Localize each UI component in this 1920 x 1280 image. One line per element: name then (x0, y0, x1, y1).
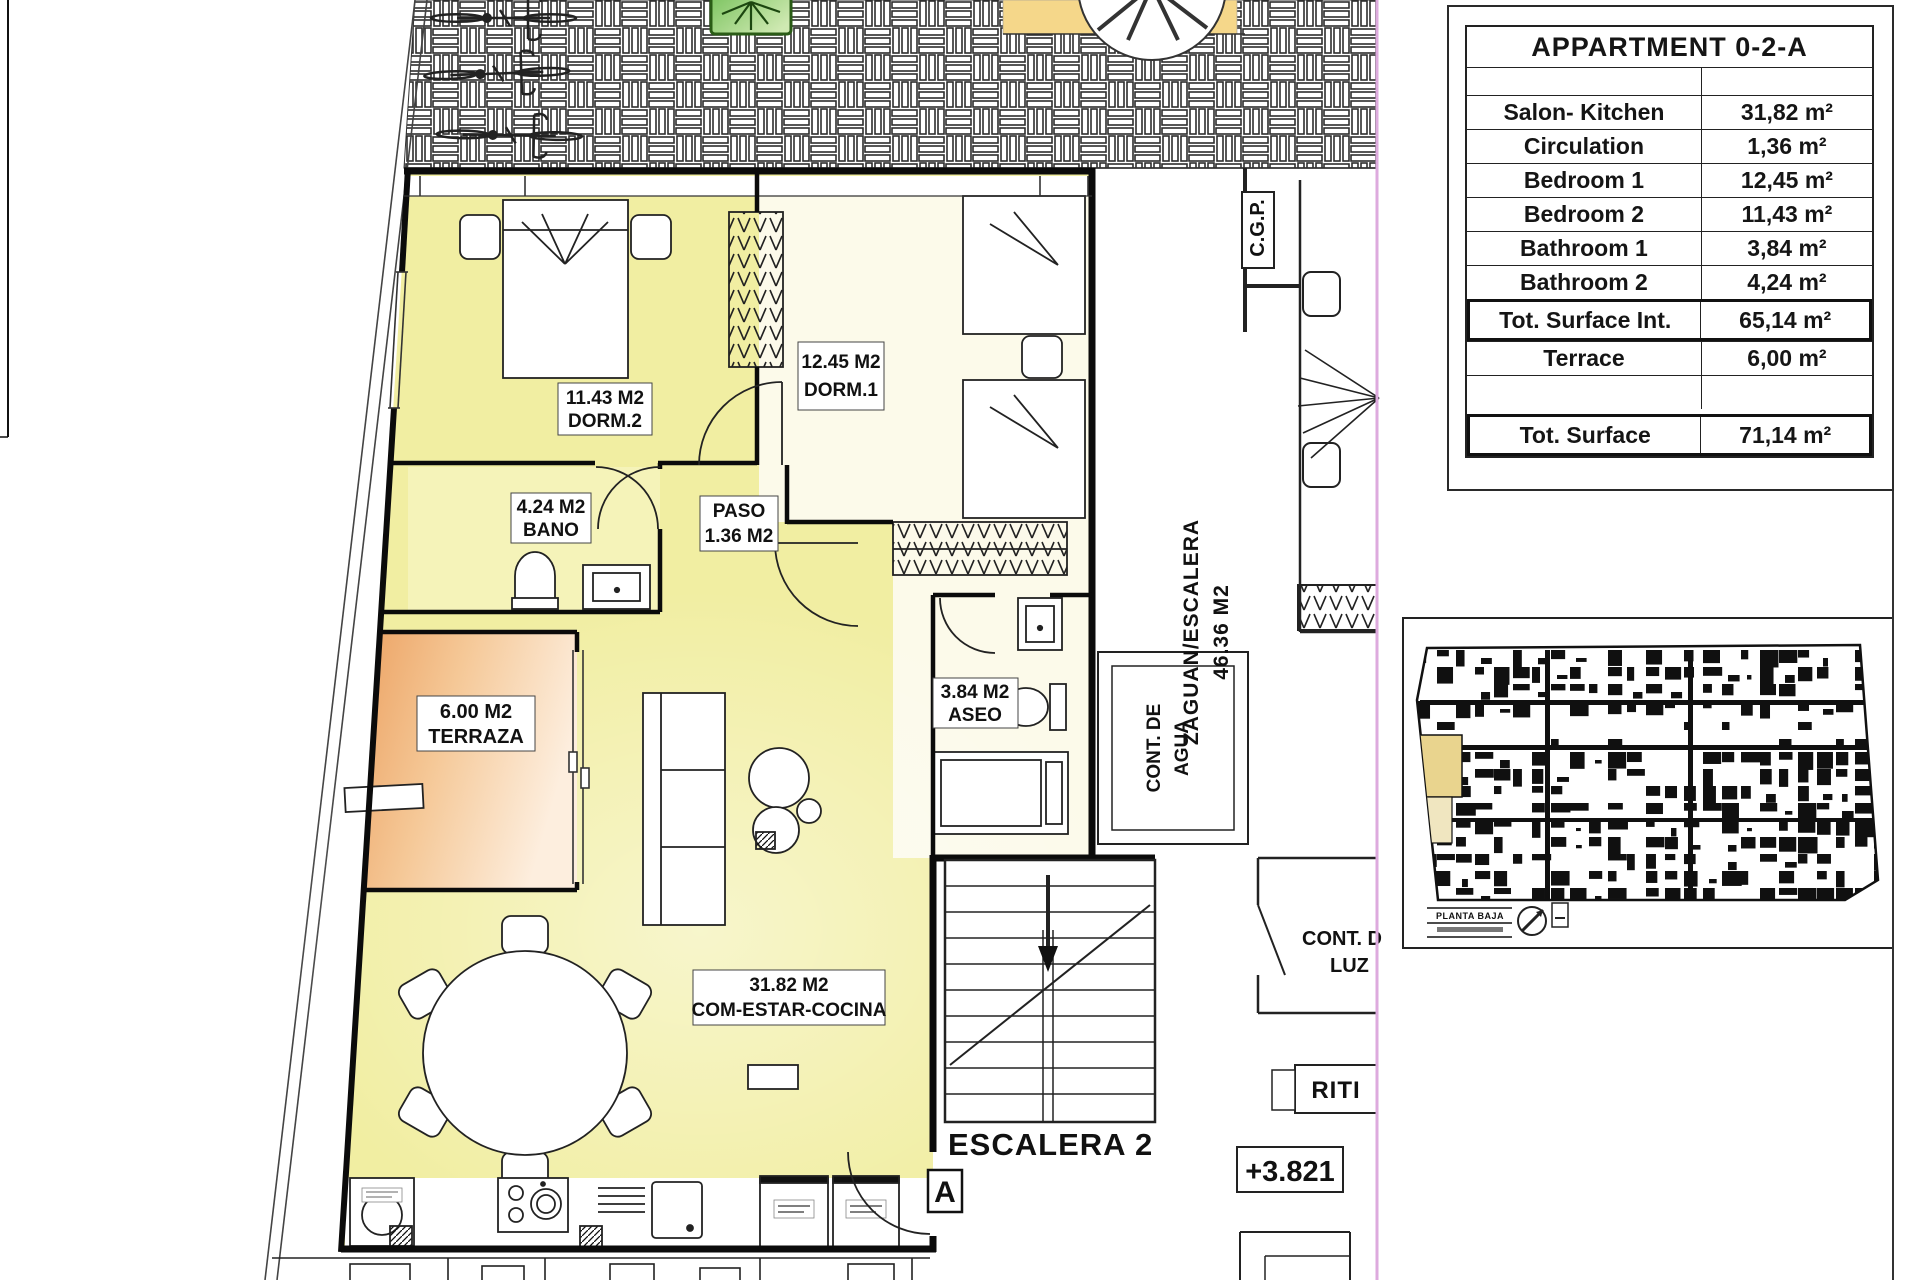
cont-luz-label: CONT. D (1302, 928, 1382, 950)
level-label: +3.821 (1245, 1156, 1335, 1188)
label-dorm2: 11.43 M2 DORM.2 (558, 383, 652, 435)
table-row (1467, 375, 1872, 409)
svg-text:1.36 M2: 1.36 M2 (705, 526, 774, 547)
svg-text:3.84 M2: 3.84 M2 (941, 682, 1010, 703)
cont-agua-label2: AGUA (1172, 720, 1193, 776)
freezer-icon (833, 1176, 899, 1248)
cont-luz-label2: LUZ (1330, 955, 1369, 977)
nightstand (1303, 272, 1340, 316)
floorplan-sheet: 11.43 M2 DORM.2 12.45 M2 DORM.1 4.24 M2 … (0, 0, 1920, 1280)
bed-single (963, 380, 1085, 518)
svg-text:4.24 M2: 4.24 M2 (517, 497, 586, 518)
svg-text:PASO: PASO (713, 501, 765, 522)
zaguan-label: ZAGUAN/ESCALERA (1180, 519, 1203, 745)
area-table: APPARTMENT 0-2-A Salon- Kitchen31,82 m² … (1465, 25, 1874, 458)
sofa-icon (643, 693, 725, 925)
riti-label: RITI (1311, 1077, 1360, 1104)
lower-unit-fragment (272, 1258, 930, 1280)
svg-text:12.45 M2: 12.45 M2 (801, 352, 880, 373)
table-row-total: Tot. Surface71,14 m² (1467, 414, 1872, 456)
svg-text:COM-ESTAR-COCINA: COM-ESTAR-COCINA (692, 1000, 887, 1021)
column (756, 832, 775, 849)
toilet-icon (512, 552, 558, 609)
zaguan-area-label: 46.36 M2 (1210, 584, 1233, 680)
area-table-title: APPARTMENT 0-2-A (1467, 27, 1872, 67)
side-table (748, 1065, 798, 1089)
nightstand (1022, 336, 1062, 378)
svg-text:TERRAZA: TERRAZA (428, 726, 524, 748)
nightstand (460, 215, 500, 259)
label-dorm1: 12.45 M2 DORM.1 (798, 342, 884, 410)
nightstand (631, 215, 671, 259)
label-paso: PASO 1.36 M2 (700, 496, 778, 551)
column (580, 1226, 602, 1248)
svg-text:DORM.1: DORM.1 (804, 380, 878, 401)
tree-icon (711, 0, 791, 34)
table-row: Bedroom 211,43 m² (1467, 197, 1872, 231)
partial-structure (1240, 1232, 1350, 1280)
table-row (1467, 67, 1872, 95)
wardrobe (893, 522, 1067, 575)
hob-icon (498, 1178, 568, 1232)
cgp-label: C.G.P. (1247, 199, 1269, 256)
table-row: Terrace6,00 m² (1467, 341, 1872, 375)
table-row-total-interior: Tot. Surface Int.65,14 m² (1467, 299, 1872, 341)
table-row: Bathroom 13,84 m² (1467, 231, 1872, 265)
sink-vanity (583, 565, 650, 609)
cont-agua-label: CONT. DE (1144, 704, 1165, 793)
stairwell (945, 860, 1155, 1122)
fan-detail (1298, 350, 1379, 458)
area-table-frame: APPARTMENT 0-2-A Salon- Kitchen31,82 m² … (1447, 5, 1894, 491)
sink-icon (1018, 598, 1062, 650)
bed-single (963, 196, 1085, 334)
bathtub-icon (933, 752, 1068, 834)
svg-text:6.00 M2: 6.00 M2 (440, 701, 512, 723)
fridge-icon (760, 1176, 828, 1248)
table-row: Bathroom 24,24 m² (1467, 265, 1872, 299)
escalera-label: ESCALERA 2 (948, 1127, 1153, 1162)
table-row: Circulation1,36 m² (1467, 129, 1872, 163)
label-aseo: 3.84 M2 ASEO (933, 678, 1018, 728)
svg-text:11.43 M2: 11.43 M2 (566, 388, 644, 409)
bed-double (503, 200, 628, 378)
svg-text:PLANTA BAJA: PLANTA BAJA (1436, 911, 1504, 921)
table-row: Salon- Kitchen31,82 m² (1467, 95, 1872, 129)
window-band (408, 176, 1092, 196)
label-salon: 31.82 M2 COM-ESTAR-COCINA (692, 970, 887, 1025)
svg-text:BANO: BANO (523, 520, 579, 541)
table-row: Bedroom 112,45 m² (1467, 163, 1872, 197)
svg-text:31.82 M2: 31.82 M2 (749, 975, 828, 996)
wardrobe (729, 212, 783, 367)
wardrobe (1298, 585, 1377, 630)
svg-text:A: A (934, 1176, 956, 1209)
entrance-marker: A (928, 1170, 962, 1212)
label-bano: 4.24 M2 BANO (511, 493, 591, 543)
key-plan: PLANTA BAJA (1403, 618, 1893, 948)
svg-text:ASEO: ASEO (948, 705, 1002, 726)
column (390, 1226, 412, 1248)
svg-text:DORM.2: DORM.2 (568, 411, 642, 432)
planter (344, 784, 423, 812)
terrace-floor (363, 632, 577, 890)
label-terraza: 6.00 M2 TERRAZA (417, 696, 535, 751)
